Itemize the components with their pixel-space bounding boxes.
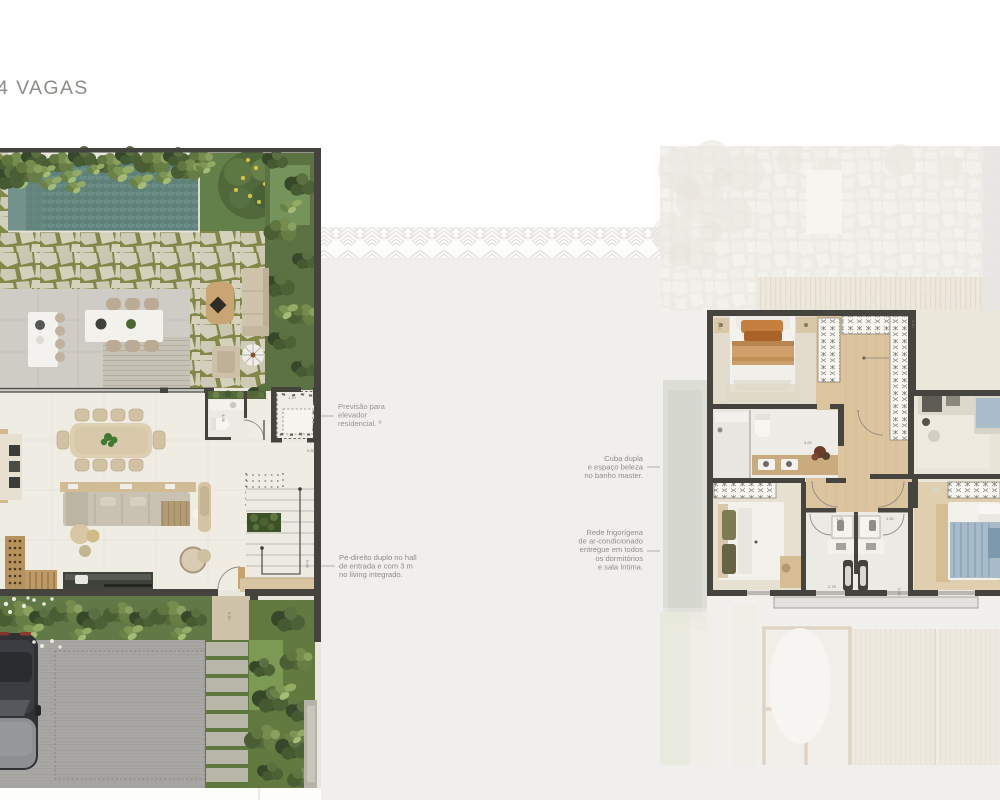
svg-text:4,10: 4,10 — [717, 322, 722, 331]
svg-text:2,80: 2,80 — [897, 588, 902, 597]
svg-text:1,51: 1,51 — [836, 516, 845, 521]
svg-text:3,00: 3,00 — [804, 440, 813, 445]
svg-text:4,15: 4,15 — [911, 320, 916, 329]
svg-text:e sala íntima.: e sala íntima. — [598, 562, 643, 571]
svg-text:5,40: 5,40 — [227, 612, 232, 621]
svg-text:1,20: 1,20 — [288, 395, 297, 400]
svg-text:4,08: 4,08 — [221, 414, 226, 423]
svg-text:no living integrado.: no living integrado. — [339, 570, 403, 579]
svg-text:6,66: 6,66 — [305, 560, 310, 569]
svg-text:no banho master.: no banho master. — [584, 471, 643, 480]
svg-text:0,58: 0,58 — [307, 448, 316, 453]
svg-text:4 VAGAS: 4 VAGAS — [0, 77, 89, 99]
svg-text:2,75: 2,75 — [828, 584, 837, 589]
svg-text:1,50: 1,50 — [886, 516, 895, 521]
svg-text:residencial. º: residencial. º — [338, 419, 382, 428]
